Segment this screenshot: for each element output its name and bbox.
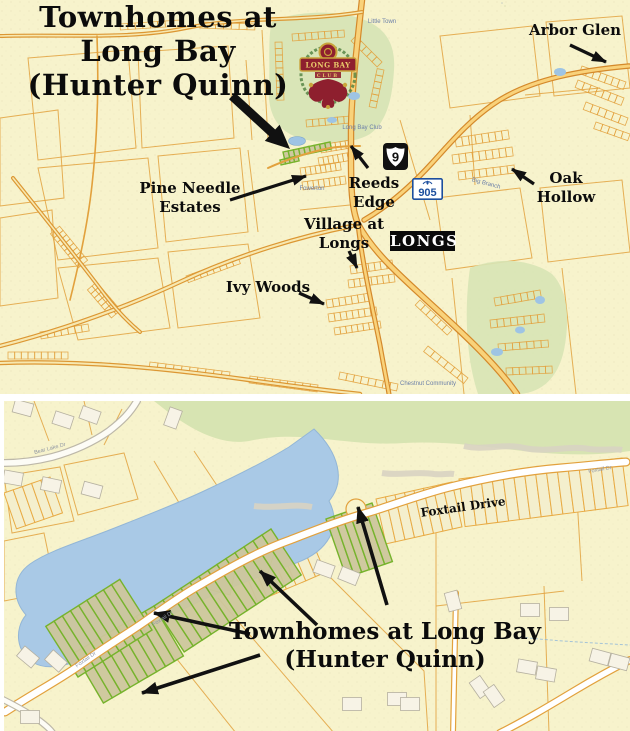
long-bay-club-street-label: Long Bay Club [332, 125, 392, 131]
map-title-line2: Long Bay [8, 34, 308, 68]
route-905-number: 905 [418, 187, 436, 199]
golf-pond [348, 92, 360, 100]
map-title-line1: Townhomes at [8, 0, 308, 34]
crest-gold-dot [309, 83, 313, 87]
houses-row-texture [254, 506, 312, 507]
reeds-edge-line2: Edge [334, 195, 414, 210]
village-line2: Longs [284, 236, 404, 251]
pine-needle-estates-label: Pine Needle Estates [120, 177, 260, 215]
oak-hollow-label: Oak Hollow [526, 167, 606, 205]
crest-name-text: LONG BAY [305, 61, 351, 70]
pond [554, 68, 566, 76]
ivy-woods-label: Ivy Woods [208, 280, 328, 295]
site-location-maps: LONG BAY CLUB 9 905 [0, 0, 630, 731]
oak-hollow-line1: Oak [526, 171, 606, 186]
arbor-glen-label: Arbor Glen [515, 23, 630, 38]
route-905-shield: 905 [413, 179, 442, 199]
pond [535, 296, 545, 304]
crest-gold-dot [343, 83, 347, 87]
overview-map: LONG BAY CLUB 9 905 [0, 0, 630, 394]
detail-map-canvas [4, 401, 630, 731]
golf-pond [327, 117, 337, 123]
little-town-street-label: Little Town [352, 19, 412, 25]
site-pond [289, 137, 306, 146]
detail-title-line1: Townhomes at Long Bay [225, 618, 545, 646]
detail-map-title: Townhomes at Long Bay (Hunter Quinn) [225, 618, 545, 674]
detail-title-line2: (Hunter Quinn) [225, 646, 545, 674]
oak-hollow-line2: Hollow [526, 190, 606, 205]
pine-needle-line1: Pine Needle [120, 181, 260, 196]
chestnut-community-street-label: Chestnut Community [383, 381, 473, 387]
reeds-edge-line1: Reeds [334, 176, 414, 191]
detail-map: Foxtail Drive Townhomes at Long Bay (Hun… [4, 401, 630, 731]
crest-club-text: CLUB [317, 73, 339, 79]
pond [491, 348, 503, 356]
map-title-line3: (Hunter Quinn) [8, 68, 308, 102]
village-at-longs-label: Village at Longs [284, 213, 404, 251]
pond [515, 327, 525, 334]
map-title: Townhomes at Long Bay (Hunter Quinn) [8, 0, 308, 102]
crest-gold-dot [326, 105, 330, 109]
fowerton-street-label: Fowerton [287, 186, 337, 192]
route-9-shield: 9 [383, 143, 408, 170]
reeds-edge-label: Reeds Edge [334, 172, 414, 210]
route-9-number: 9 [392, 150, 399, 165]
village-line1: Village at [284, 217, 404, 232]
pine-needle-line2: Estates [120, 200, 260, 215]
houses-row-texture [382, 473, 454, 474]
longs-town-badge: LONGS [390, 231, 455, 251]
